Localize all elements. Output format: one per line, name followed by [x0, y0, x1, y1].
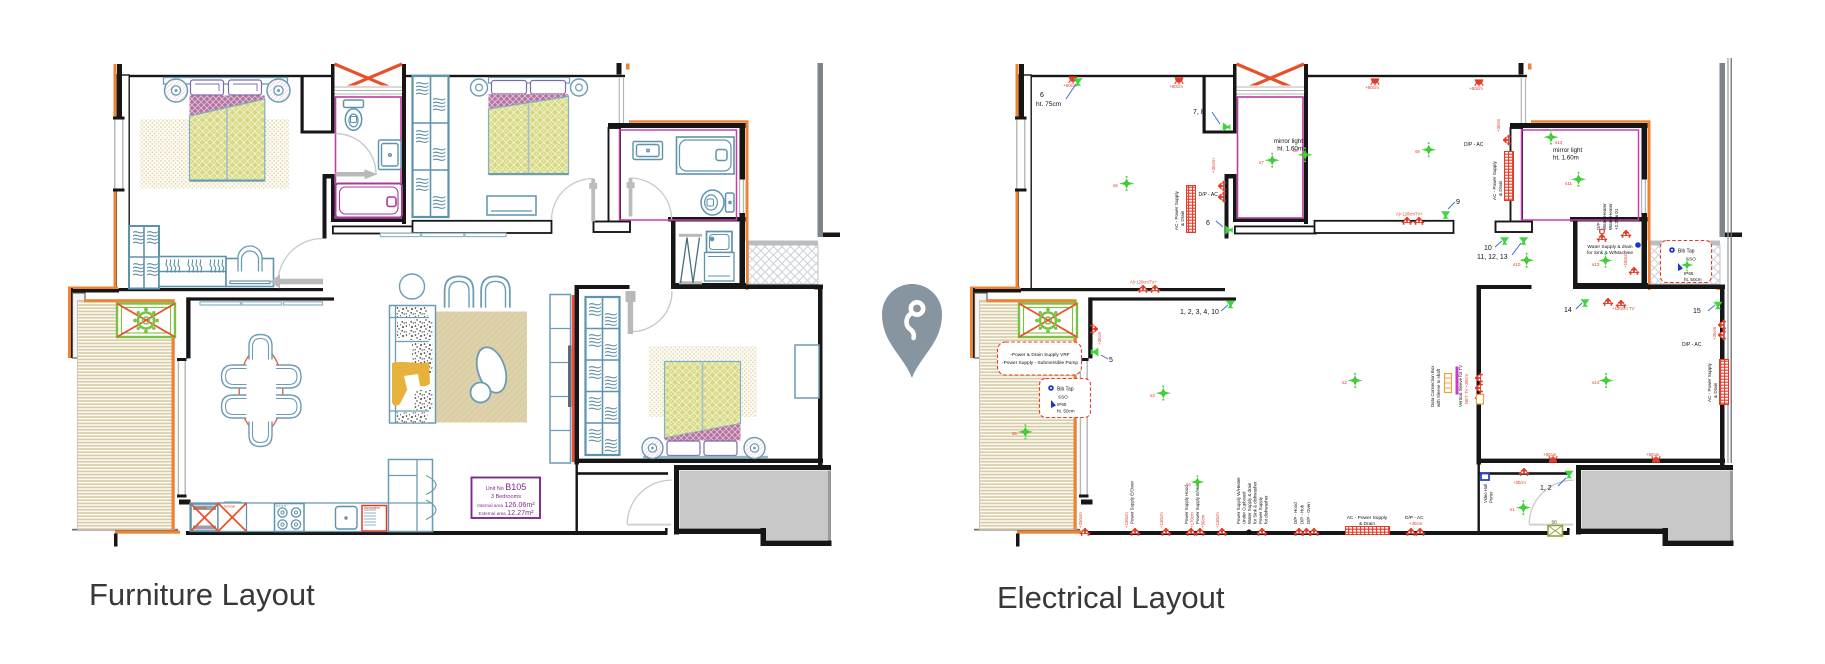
svg-text:ht. 1.60m: ht. 1.60m	[1277, 146, 1303, 153]
svg-text:6: 6	[1206, 220, 1210, 227]
svg-text:+2.20m 01: +2.20m 01	[1614, 208, 1619, 230]
svg-text:Water Supply & drain: Water Supply & drain	[1247, 482, 1252, 524]
svg-text:s2: s2	[1342, 380, 1347, 385]
svg-text:+50cm: +50cm	[1201, 514, 1206, 528]
svg-text:+30cm: +30cm	[1097, 331, 1102, 345]
svg-text:Vertical Sleeve for TV: Vertical Sleeve for TV	[1458, 365, 1463, 407]
svg-text:ht. 50cm: ht. 50cm	[1057, 409, 1075, 414]
svg-text:IP65: IP65	[1684, 271, 1694, 276]
svg-text:Furniture Layout: Furniture Layout	[89, 577, 315, 612]
svg-text:remove: remove	[224, 505, 235, 509]
svg-text:Power Supply: Power Supply	[1258, 496, 1263, 524]
svg-text:ht. 50cm: ht. 50cm	[1684, 277, 1702, 282]
svg-text:washing: washing	[194, 506, 207, 510]
svg-text:s1: s1	[1510, 507, 1515, 512]
svg-text:+30cm: +30cm	[1712, 326, 1717, 340]
svg-text:Electrical Layout: Electrical Layout	[997, 580, 1225, 615]
svg-text:& Drain: & Drain	[1180, 210, 1185, 226]
svg-text:SSO: SSO	[1058, 395, 1068, 400]
svg-text:+60cm: +60cm	[1169, 84, 1183, 89]
svg-text:AC - Power Supply: AC - Power Supply	[1347, 515, 1388, 521]
svg-text:+30cm: +30cm	[1513, 480, 1526, 485]
svg-text:10: 10	[1484, 245, 1492, 252]
svg-text:+30cm: +30cm	[1409, 521, 1423, 526]
svg-text:1, 2: 1, 2	[1540, 485, 1552, 492]
svg-text:s12: s12	[1555, 140, 1563, 145]
svg-text:& Drain: & Drain	[1713, 382, 1718, 398]
svg-text:AC - Power Supply: AC - Power Supply	[1174, 190, 1179, 230]
svg-text:11, 12, 13: 11, 12, 13	[1477, 254, 1508, 261]
svg-text:Bib Tap: Bib Tap	[1678, 249, 1695, 255]
svg-text:+150cm: +150cm	[1623, 252, 1628, 268]
svg-text:Under Cupboard: Under Cupboard	[1242, 491, 1247, 524]
svg-text:+60cm: +60cm	[1365, 85, 1379, 90]
svg-text:s11: s11	[1565, 181, 1573, 186]
svg-text:s7: s7	[1259, 160, 1264, 165]
svg-text:1, 2, 3, 4, 10: 1, 2, 3, 4, 10	[1180, 309, 1219, 316]
svg-text:mirror light: mirror light	[1274, 138, 1304, 145]
svg-text:AC - Power Supply: AC - Power Supply	[1707, 362, 1712, 402]
svg-text:ht. 75cm: ht. 75cm	[1036, 101, 1062, 108]
svg-text:-Power Supply - Submersible Pu: -Power Supply - Submersible Pump	[1002, 360, 1078, 366]
svg-text:Power Supply E/Oven: Power Supply E/Oven	[1130, 480, 1135, 524]
svg-text:+30cm: +30cm	[1496, 118, 1501, 132]
svg-text:+60cm: +60cm	[1646, 452, 1660, 457]
svg-text:5: 5	[1109, 357, 1113, 364]
svg-text:Power Supply E/Hob: Power Supply E/Hob	[1195, 483, 1200, 524]
svg-text:ht. 1.60m: ht. 1.60m	[1553, 155, 1579, 162]
svg-text:+120cm TV: +120cm TV	[1612, 306, 1635, 311]
svg-text:14: 14	[1564, 307, 1572, 314]
svg-text:s9: s9	[1415, 149, 1420, 154]
svg-text:s3: s3	[1150, 393, 1155, 398]
svg-text:+250cm: +250cm	[1078, 512, 1083, 528]
svg-text:+170cm: +170cm	[1190, 512, 1195, 528]
svg-text:+130cm: +130cm	[1159, 512, 1164, 528]
svg-text:Power Supply Hood: Power Supply Hood	[1184, 485, 1189, 524]
svg-text:9: 9	[1456, 199, 1460, 206]
svg-text:+60cm: +60cm	[1469, 86, 1483, 91]
svg-text:7, 8: 7, 8	[1193, 109, 1205, 116]
svg-text:s13: s13	[1592, 262, 1600, 267]
svg-text:IP65: IP65	[1057, 402, 1067, 407]
svg-text:NET TV +30cm: NET TV +30cm	[1464, 374, 1469, 404]
svg-text:s10: s10	[1513, 262, 1521, 267]
svg-text:dishwasher: dishwasher	[364, 506, 381, 510]
svg-text:+130cm: +130cm	[1215, 512, 1220, 528]
svg-text:+130cm: +130cm	[1124, 512, 1129, 528]
svg-text:Data Connection Box: Data Connection Box	[1430, 365, 1435, 407]
svg-text:A|‣120cmTV+: A|‣120cmTV+	[1396, 212, 1423, 217]
svg-text:Water Supply & drain: Water Supply & drain	[1587, 244, 1632, 250]
svg-text:A|‣120cmTV+: A|‣120cmTV+	[1130, 280, 1157, 285]
svg-text:Bib Tap: Bib Tap	[1057, 387, 1074, 393]
svg-text:+30cm+: +30cm+	[1211, 157, 1216, 173]
svg-text:D/P - AC: D/P - AC	[1682, 342, 1702, 348]
svg-text:s4: s4	[1186, 482, 1191, 487]
svg-text:D/P - Oven: D/P - Oven	[1306, 502, 1311, 524]
svg-text:6: 6	[1040, 92, 1044, 99]
svg-text:D/P: D/P	[1596, 222, 1601, 230]
svg-text:Porter: Porter	[1489, 491, 1494, 503]
svg-text:-Power & Drain Supply VRF: -Power & Drain Supply VRF	[1010, 352, 1070, 358]
svg-text:D/P - Hob: D/P - Hob	[1300, 504, 1305, 524]
svg-text:15: 15	[1693, 308, 1701, 315]
svg-text:& Drain: & Drain	[1498, 180, 1503, 196]
svg-text:D/P - AC: D/P - AC	[1199, 192, 1219, 198]
svg-text:s14: s14	[1592, 380, 1600, 385]
svg-text:AC - Power Supply: AC - Power Supply	[1492, 160, 1497, 200]
svg-text:Video Hall: Video Hall	[1483, 484, 1488, 503]
svg-text:mirror light: mirror light	[1553, 147, 1583, 154]
svg-text:Water Heater: Water Heater	[1608, 203, 1613, 230]
svg-text:for dishwasher: for dishwasher	[1264, 495, 1269, 524]
svg-text:+60cm: +60cm	[1543, 452, 1557, 457]
svg-text:Power Supply W/Heater: Power Supply W/Heater	[1236, 477, 1241, 524]
svg-text:s6: s6	[1113, 183, 1118, 188]
svg-text:Water Heater: Water Heater	[1602, 203, 1607, 230]
svg-text:for Sink & dishwasher: for Sink & dishwasher	[1253, 481, 1258, 524]
svg-text:o o o o: o o o o	[276, 504, 286, 508]
svg-text:s5: s5	[1012, 431, 1017, 436]
svg-text:with Sleeve to shaft: with Sleeve to shaft	[1436, 368, 1441, 407]
svg-text:BB: BB	[1552, 520, 1558, 525]
svg-text:D/P - AC: D/P - AC	[1464, 142, 1484, 148]
svg-text:D/P - Hood: D/P - Hood	[1293, 502, 1298, 524]
